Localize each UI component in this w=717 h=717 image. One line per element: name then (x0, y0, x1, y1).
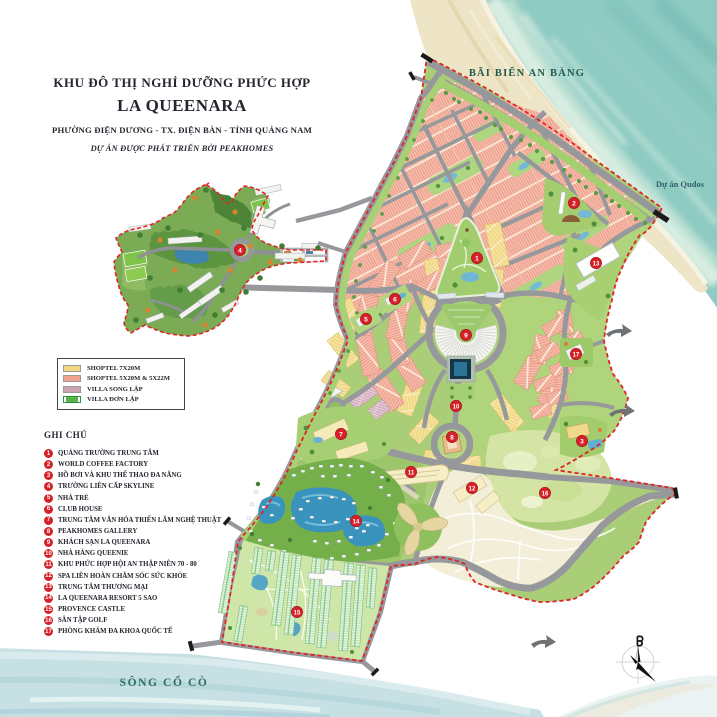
svg-text:Dự án Qudos: Dự án Qudos (656, 179, 705, 189)
svg-text:8: 8 (450, 434, 454, 441)
svg-text:6: 6 (393, 296, 397, 303)
svg-text:2: 2 (572, 200, 576, 207)
svg-text:17: 17 (573, 352, 580, 358)
svg-text:3: 3 (580, 438, 584, 445)
svg-text:BÃI BIỂN AN BÀNG: BÃI BIỂN AN BÀNG (469, 66, 585, 79)
svg-text:10: 10 (453, 404, 460, 410)
svg-text:12: 12 (469, 486, 476, 492)
svg-text:7: 7 (339, 431, 343, 438)
svg-text:16: 16 (542, 491, 549, 497)
svg-text:9: 9 (464, 332, 468, 339)
svg-text:SÔNG CỔ CÒ: SÔNG CỔ CÒ (120, 674, 209, 689)
svg-text:14: 14 (353, 519, 360, 525)
svg-text:13: 13 (593, 261, 600, 267)
svg-text:15: 15 (294, 610, 301, 616)
svg-text:11: 11 (408, 470, 415, 476)
svg-text:5: 5 (364, 316, 368, 323)
svg-text:1: 1 (475, 255, 479, 262)
svg-text:4: 4 (238, 247, 242, 254)
